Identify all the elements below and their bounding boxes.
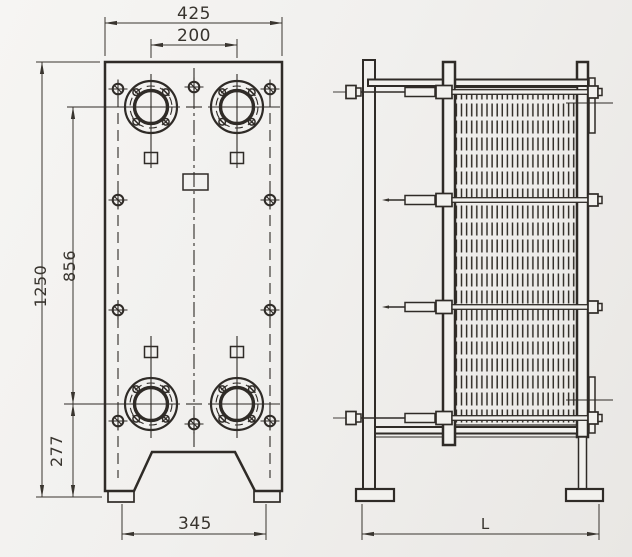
- dim-label-425: 425: [177, 4, 211, 24]
- column-foot: [356, 489, 394, 501]
- dim-foot-spacing: 345: [122, 504, 266, 540]
- dim-length: L: [362, 504, 599, 540]
- dim-label-345: 345: [178, 514, 212, 534]
- carrying-bar: [368, 80, 588, 87]
- guide-bar: [375, 427, 577, 434]
- fixed-plate: [577, 62, 588, 437]
- drawing-sheet: 425 200 1250 856 277: [0, 0, 632, 557]
- nameplate: [183, 174, 208, 190]
- dim-port-vertical-spacing: 856: [60, 107, 79, 404]
- dim-label-1250: 1250: [31, 265, 50, 308]
- foot-pad-left: [108, 491, 134, 502]
- dim-port-spacing: 200: [151, 26, 237, 58]
- dim-port-to-base: 277: [47, 404, 73, 497]
- dim-label-L: L: [481, 515, 490, 533]
- support-column: [363, 60, 375, 491]
- front-view: 425 200 1250 856 277: [31, 4, 282, 540]
- movable-plate: [443, 62, 455, 445]
- foot-pad-right: [254, 491, 280, 502]
- dim-label-200: 200: [177, 26, 211, 46]
- fixed-plate-leg: [579, 437, 587, 489]
- dim-label-856: 856: [60, 250, 79, 282]
- dim-label-277: 277: [47, 435, 66, 467]
- frame-foot: [566, 489, 603, 501]
- plate-pack: [456, 93, 577, 425]
- technical-drawing: 425 200 1250 856 277: [0, 0, 632, 557]
- side-view: L: [333, 60, 613, 540]
- port-centerlines: [64, 74, 280, 438]
